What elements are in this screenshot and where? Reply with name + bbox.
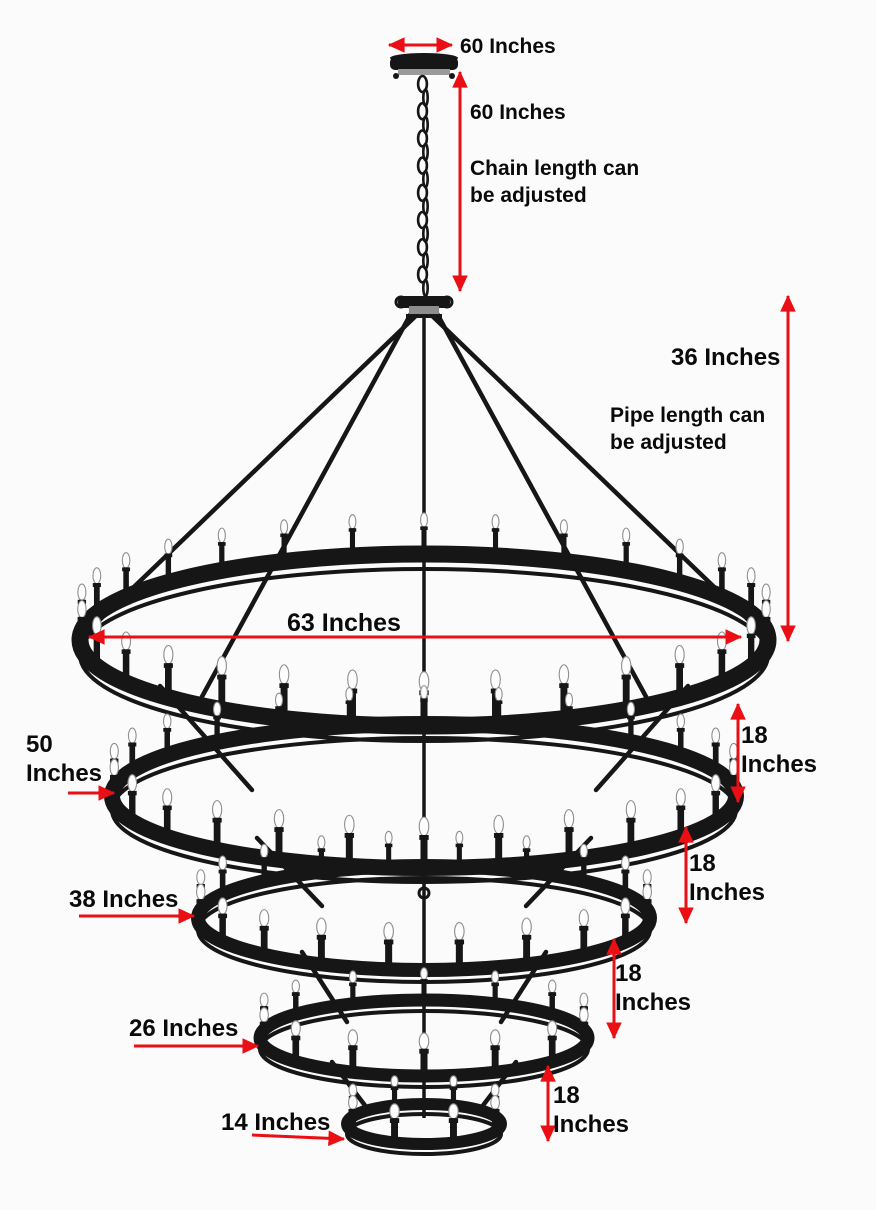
gap4-label: 18 Inches — [553, 1081, 629, 1139]
stage: 60 Inches 60 Inches Chain length can be … — [0, 0, 876, 1210]
gap4-unit: Inches — [553, 1110, 629, 1139]
tier2-diameter-label: 50 Inches — [26, 730, 102, 788]
tier5-diameter-label: 14 Inches — [221, 1108, 330, 1137]
gap3-label: 18 Inches — [615, 959, 691, 1017]
gap2-value: 18 — [689, 849, 765, 878]
chain-length-label: 60 Inches — [470, 99, 566, 126]
gap1-value: 18 — [741, 721, 817, 750]
gap3-value: 18 — [615, 959, 691, 988]
pipe-note-line2: be adjusted — [610, 429, 765, 456]
tier2-diameter-unit: Inches — [26, 759, 102, 788]
tier4-diameter-label: 26 Inches — [129, 1014, 238, 1043]
pipe-note: Pipe length can be adjusted — [610, 402, 765, 456]
chain-note-line2: be adjusted — [470, 182, 639, 209]
chain-note: Chain length can be adjusted — [470, 155, 639, 209]
tier1-diameter-label: 63 Inches — [287, 609, 401, 638]
pipe-length-label: 36 Inches — [671, 343, 780, 372]
tier2-diameter-value: 50 — [26, 730, 102, 759]
gap3-unit: Inches — [615, 988, 691, 1017]
chain-note-line1: Chain length can — [470, 155, 639, 182]
gap2-unit: Inches — [689, 878, 765, 907]
canopy-width-label: 60 Inches — [460, 33, 556, 60]
tier3-diameter-label: 38 Inches — [69, 885, 178, 914]
gap2-label: 18 Inches — [689, 849, 765, 907]
gap1-unit: Inches — [741, 750, 817, 779]
pipe-note-line1: Pipe length can — [610, 402, 765, 429]
gap1-label: 18 Inches — [741, 721, 817, 779]
gap4-value: 18 — [553, 1081, 629, 1110]
